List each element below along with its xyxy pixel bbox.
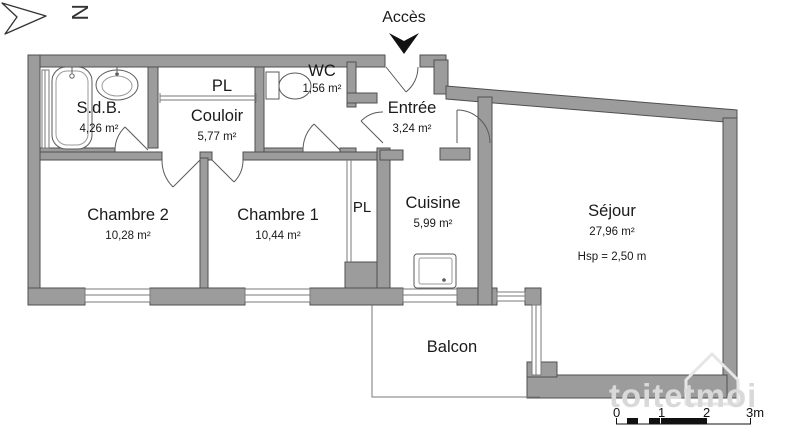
room-label-chambre1: Chambre 1 10,44 m²: [237, 206, 319, 243]
access-label: Accès: [382, 9, 426, 27]
room-label-balcon: Balcon: [427, 338, 477, 356]
north-arrow-icon: N: [2, 3, 93, 34]
room-name: Chambre 2: [87, 206, 169, 224]
room-area: 1,56 m²: [303, 84, 342, 96]
bathroom-sink-icon: [96, 67, 138, 100]
window-chambre2: [85, 289, 150, 302]
room-label-pl-side: PL: [353, 200, 371, 217]
room-name: Entrée: [388, 99, 437, 117]
room-name: Chambre 1: [237, 206, 319, 224]
room-label-chambre2: Chambre 2 10,28 m²: [87, 206, 169, 243]
room-name: Balcon: [427, 338, 477, 356]
room-ceiling-height: Hsp = 2,50 m: [578, 252, 647, 264]
door-entrance: [386, 67, 418, 92]
door-couloir-entree: [361, 112, 383, 143]
room-area: 4,26 m²: [77, 124, 122, 136]
room-name: Couloir: [191, 107, 243, 125]
room-name: Séjour: [578, 202, 647, 220]
access-arrow-icon: [389, 33, 419, 54]
room-label-wc: WC 1,56 m²: [303, 62, 342, 96]
window-cuisine: [403, 289, 457, 302]
window-sejour-balcony-v: [532, 305, 541, 375]
watermark-logo: toitetmoi: [609, 377, 757, 415]
door-chambre2: [162, 160, 200, 187]
room-area: 5,77 m²: [191, 132, 243, 144]
room-name: Cuisine: [405, 194, 460, 212]
door-wc: [303, 124, 340, 150]
closet-front-pl-side: [347, 160, 351, 262]
closet-front-pl-top: [160, 93, 256, 103]
room-name: S.d.B.: [77, 99, 122, 117]
room-label-cuisine: Cuisine 5,99 m²: [405, 194, 460, 231]
room-name: PL: [212, 77, 232, 95]
window-chambre1: [245, 289, 310, 302]
room-label-sdb: S.d.B. 4,26 m²: [77, 99, 122, 136]
room-name: PL: [353, 200, 371, 217]
room-area: 10,44 m²: [237, 231, 319, 243]
window-sejour-balcony-h: [497, 292, 525, 301]
room-label-couloir: Couloir 5,77 m²: [191, 107, 243, 144]
floor-plan-page: N: [0, 0, 800, 426]
room-label-sejour: Séjour 27,96 m² Hsp = 2,50 m: [578, 202, 647, 263]
room-label-entree: Entrée 3,24 m²: [388, 99, 437, 136]
door-chambre1: [212, 160, 243, 182]
north-letter: N: [67, 4, 93, 21]
room-area: 27,96 m²: [578, 227, 647, 239]
window-sdb: [42, 70, 49, 148]
room-area: 5,99 m²: [405, 219, 460, 231]
room-name: WC: [303, 62, 342, 80]
room-area: 3,24 m²: [388, 124, 437, 136]
kitchen-sink-icon: [414, 254, 456, 288]
room-area: 10,28 m²: [87, 231, 169, 243]
room-label-pl-top: PL: [212, 77, 232, 95]
